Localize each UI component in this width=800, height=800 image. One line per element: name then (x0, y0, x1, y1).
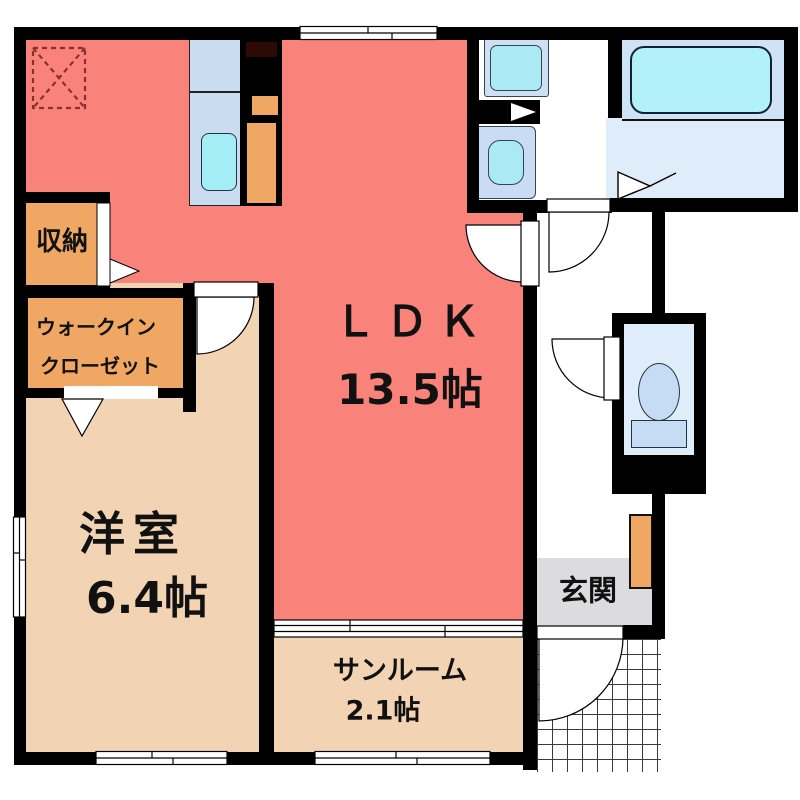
toilet-bowl (638, 363, 680, 421)
room-sunroom (274, 620, 523, 760)
western-room-label: 洋室 (79, 511, 187, 557)
wall-storage-bottom (14, 285, 110, 297)
wall-washroom-bath-divider (608, 27, 622, 118)
bathroom-door-opening (606, 118, 622, 200)
bathtub (630, 46, 772, 114)
wall-washroom-left (467, 27, 479, 213)
wall-ldk-hall (523, 213, 537, 770)
wall-bathroom-right (784, 27, 798, 212)
toilet-tank (631, 420, 687, 448)
wall-western-ldk (259, 283, 274, 765)
shoe-cabinet (629, 514, 653, 589)
wall-wic-right (183, 288, 196, 412)
floor-plan: ＬＤＫ 13.5帖 洋室 6.4帖 サンルーム 2.1帖 収納 ウォークイン ク… (0, 0, 800, 800)
wall-storage-top (14, 192, 110, 203)
washing-machine (490, 45, 542, 91)
sunroom-label: サンルーム (333, 658, 467, 685)
wall-entrance-bottom (623, 625, 665, 639)
wall-washroom-bottom (467, 200, 612, 213)
door-arc-toilet (552, 339, 611, 398)
kitchen-sink (201, 133, 237, 191)
bathroom-zone-divider (622, 119, 784, 121)
ldk-label: ＬＤＫ (334, 301, 490, 343)
storage-label: 収納 (36, 229, 88, 255)
entrance-label: 玄関 (559, 577, 617, 606)
western-room-area-label: 6.4帖 (86, 577, 208, 621)
wall-hall-right-lower (652, 494, 665, 639)
ldk-area-label: 13.5帖 (337, 369, 483, 411)
kitchen-cabinet-upper (252, 96, 278, 115)
wall-left (14, 27, 26, 765)
range-area (246, 42, 277, 57)
washroom-shelf (473, 100, 540, 124)
vanity-sink-bowl (488, 140, 524, 185)
sunroom-area-label: 2.1帖 (346, 698, 421, 725)
walk-in-closet-label-line1: ウォークイン (36, 317, 156, 337)
wall-top (14, 27, 798, 40)
wall-bathroom-bottom (610, 198, 798, 212)
walk-in-closet-label-line2: クローゼット (40, 356, 160, 376)
kitchen-cabinet-lower (247, 123, 276, 203)
wall-hall-right-upper (652, 212, 665, 313)
entrance-porch-tiles (537, 639, 661, 772)
wall-bottom (14, 752, 537, 765)
kitchen-counter-divider (189, 91, 241, 93)
door-arc-washroom (549, 212, 609, 272)
